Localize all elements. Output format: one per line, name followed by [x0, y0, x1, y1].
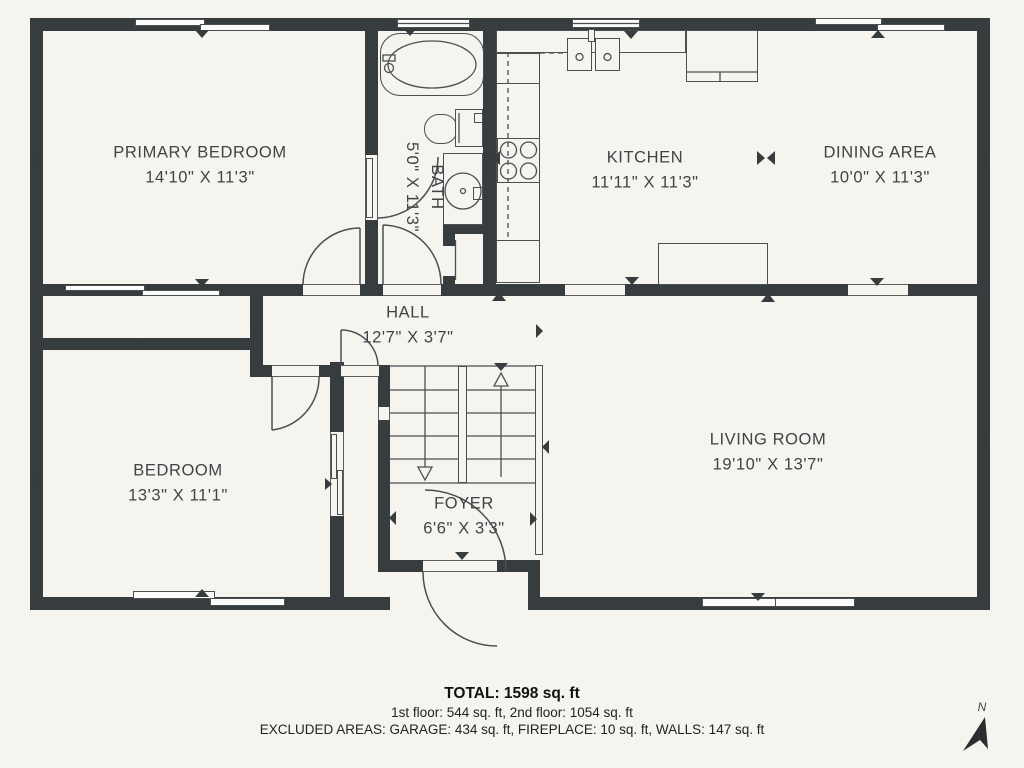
room-label-bath: BATH 5'0" X 11'3": [399, 142, 449, 232]
bathtub-basin: [388, 41, 476, 88]
room-label-bedroom: BEDROOM 13'3" X 11'1": [128, 458, 228, 508]
compass-north-label: N: [972, 700, 992, 714]
room-dims: 13'3" X 11'1": [128, 483, 228, 508]
door-arc-bath: [383, 225, 441, 284]
stairs-entry-marker: [494, 363, 508, 371]
room-name: BATH: [424, 142, 449, 232]
total-area: TOTAL: 1598 sq. ft: [0, 684, 1024, 703]
room-dims: 6'6" X 3'3": [423, 516, 505, 541]
door-arc-primary-bedroom: [303, 228, 360, 285]
excluded-areas: EXCLUDED AREAS: GARAGE: 434 sq. ft, FIRE…: [0, 722, 1024, 739]
refrigerator-doors: [686, 72, 758, 82]
room-label-primary-bedroom: PRIMARY BEDROOM 14'10" X 11'3": [113, 140, 286, 190]
staircase: [390, 366, 535, 483]
stove-burner: [521, 163, 537, 179]
room-name: KITCHEN: [591, 145, 698, 170]
stairs-down-arrow: [418, 366, 432, 480]
room-name: BEDROOM: [128, 458, 228, 483]
sink-drain: [604, 54, 611, 61]
door-arc-bedroom: [272, 377, 319, 430]
floor-areas: 1st floor: 544 sq. ft, 2nd floor: 1054 s…: [0, 705, 1024, 722]
wall-markers: [33, 28, 989, 601]
room-dims: 19'10" X 13'7": [710, 452, 827, 477]
room-dims: 10'0" X 11'3": [824, 165, 937, 190]
room-dims: 12'7" X 3'7": [362, 325, 453, 350]
floor-plan: PRIMARY BEDROOM 14'10" X 11'3" BATH 5'0"…: [0, 0, 1024, 768]
area-summary: TOTAL: 1598 sq. ft 1st floor: 544 sq. ft…: [0, 684, 1024, 739]
room-label-dining-area: DINING AREA 10'0" X 11'3": [824, 140, 937, 190]
stove-burner: [521, 142, 537, 158]
room-label-living-room: LIVING ROOM 19'10" X 13'7": [710, 427, 827, 477]
vanity-basin: [445, 173, 481, 209]
room-dims: 14'10" X 11'3": [113, 165, 286, 190]
room-dims: 5'0" X 11'3": [399, 142, 424, 232]
room-label-hall: HALL 12'7" X 3'7": [362, 300, 453, 350]
room-name: LIVING ROOM: [710, 427, 827, 452]
room-label-foyer: FOYER 6'6" X 3'3": [423, 491, 505, 541]
plan-symbols: [0, 0, 1024, 768]
sink-drain: [576, 54, 583, 61]
room-name: HALL: [362, 300, 453, 325]
room-dims: 11'11" X 11'3": [591, 170, 698, 195]
room-name: PRIMARY BEDROOM: [113, 140, 286, 165]
room-name: DINING AREA: [824, 140, 937, 165]
room-label-kitchen: KITCHEN 11'11" X 11'3": [591, 145, 698, 195]
room-name: FOYER: [423, 491, 505, 516]
vanity-drain: [461, 189, 466, 194]
door-arc-front-out: [423, 572, 497, 646]
